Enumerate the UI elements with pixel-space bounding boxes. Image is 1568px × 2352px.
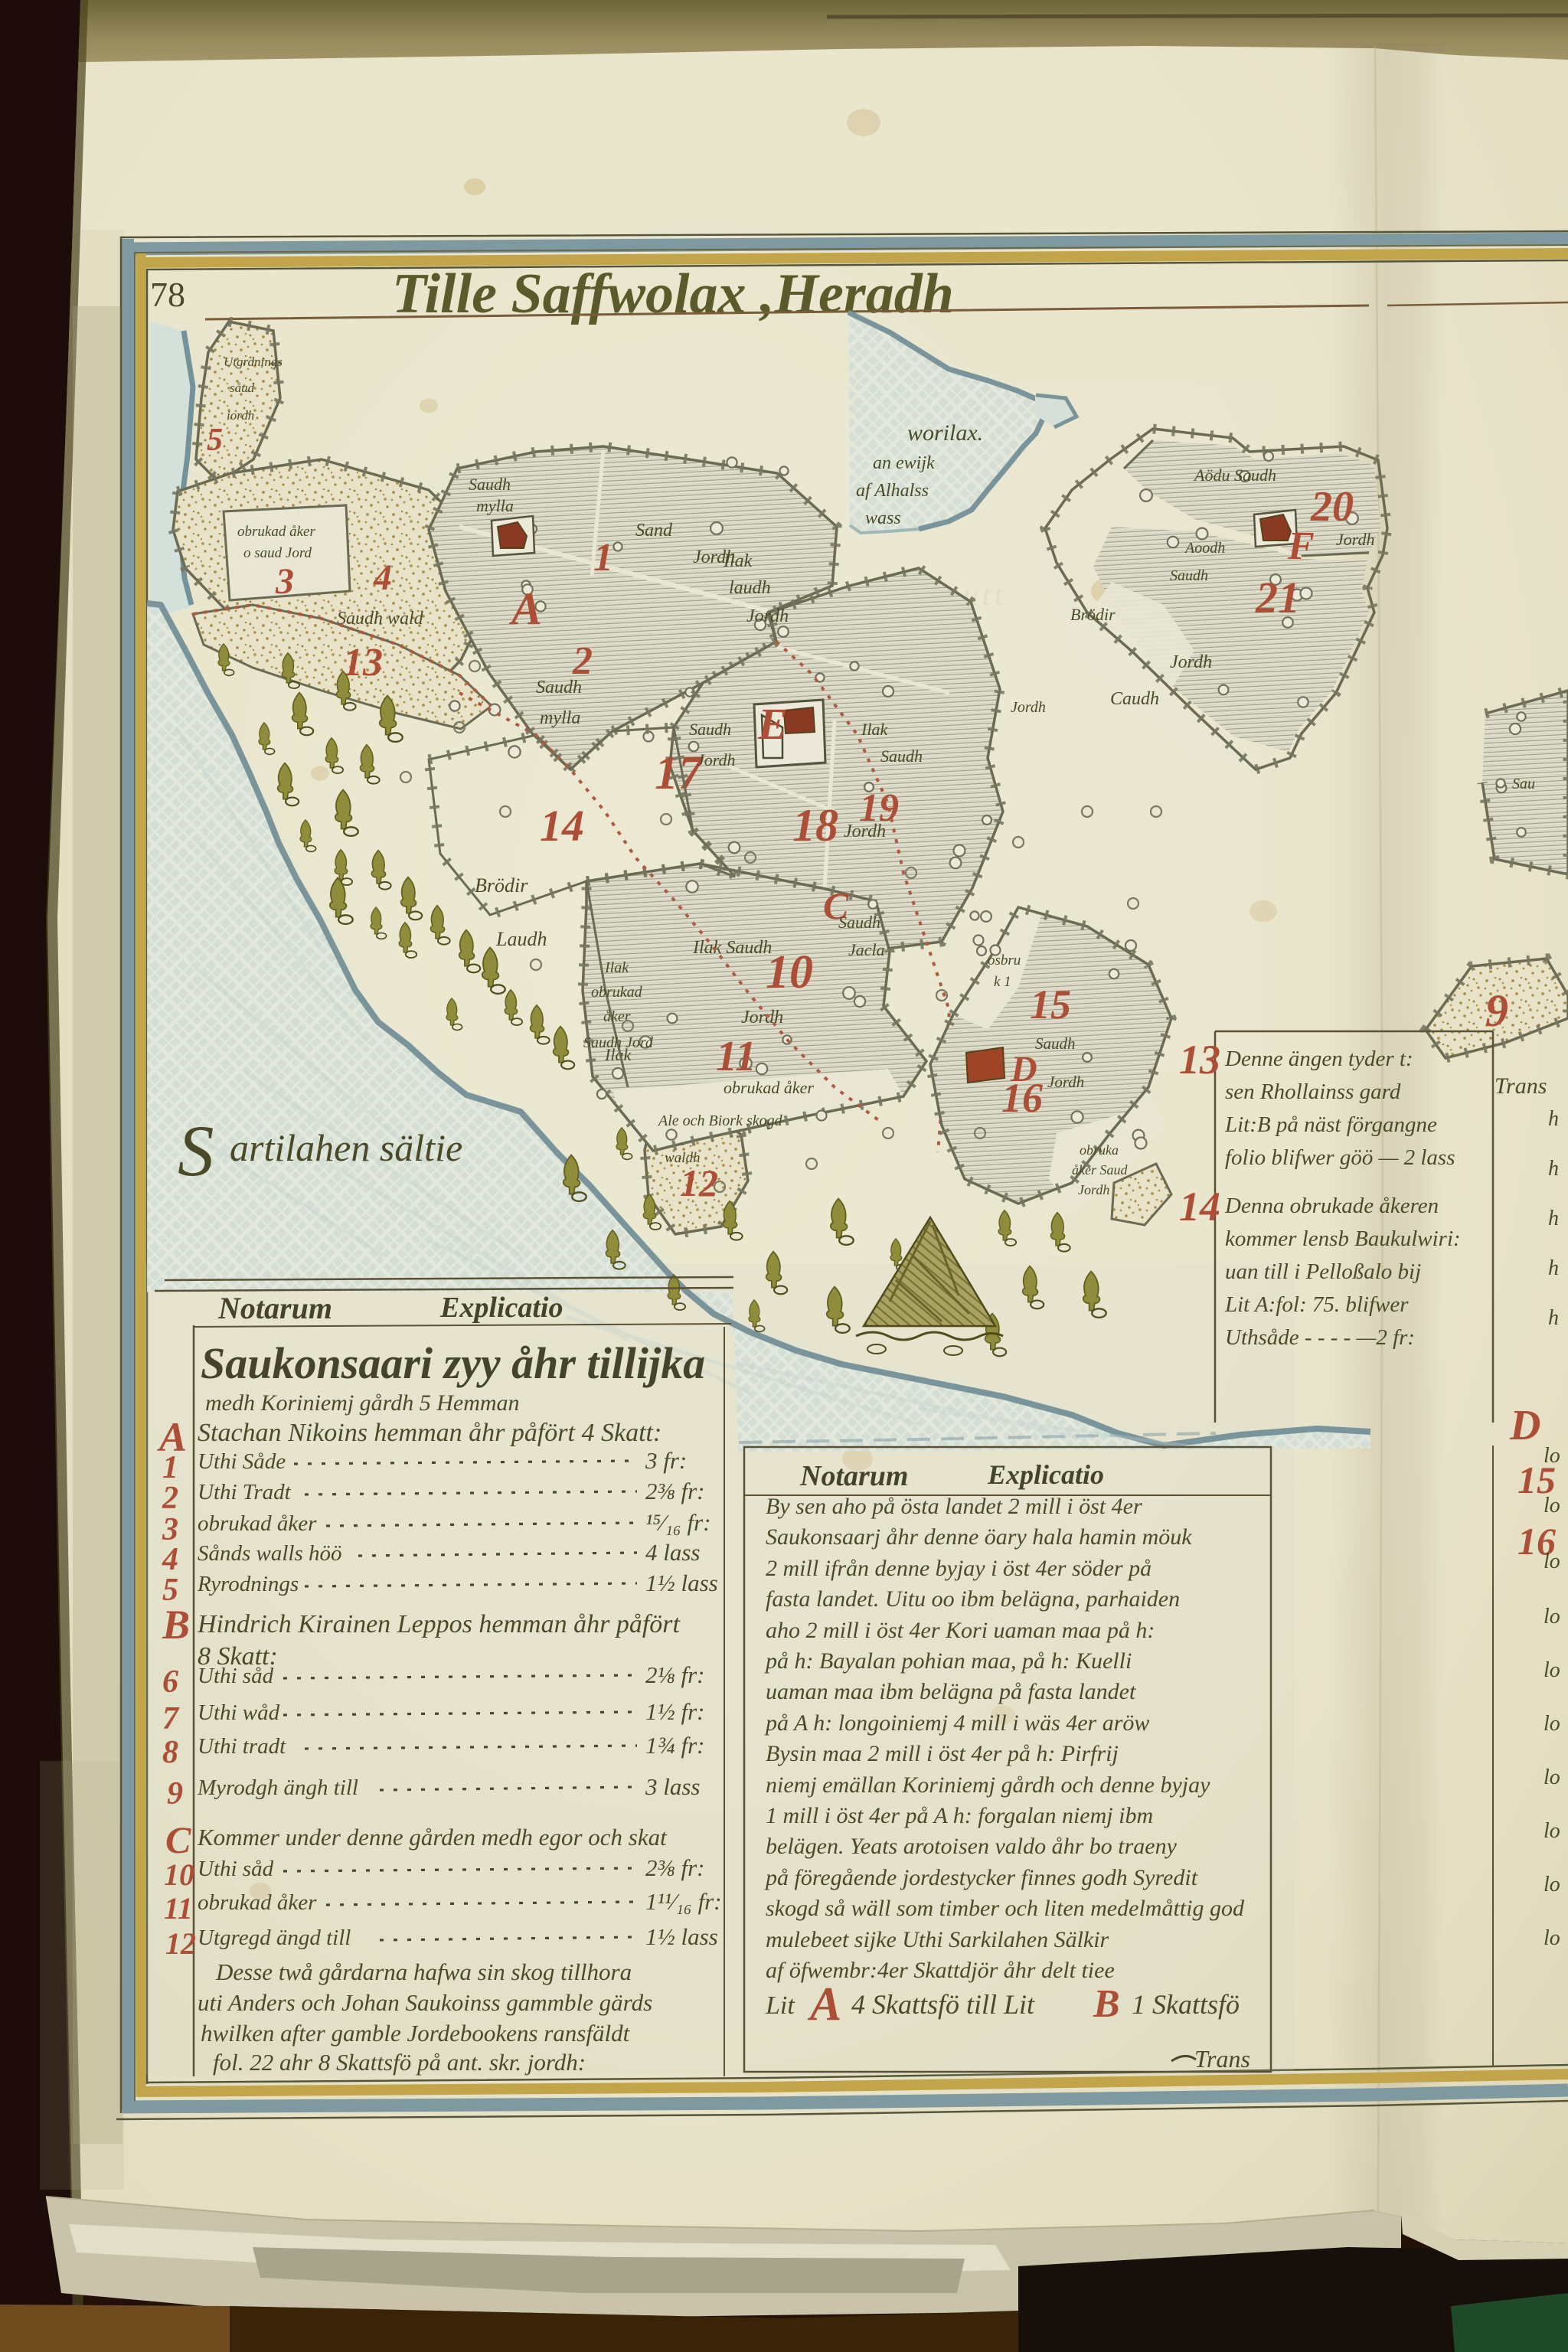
svg-text:4 Skattsfö till Lit: 4 Skattsfö till Lit	[851, 1989, 1035, 2020]
svg-text:laudh: laudh	[729, 578, 771, 598]
svg-text:Uthi såd: Uthi såd	[198, 1857, 274, 1881]
svg-text:Denna obrukade åkeren: Denna obrukade åkeren	[1224, 1194, 1439, 1218]
svg-text:21: 21	[1255, 573, 1300, 622]
svg-text:mylla: mylla	[540, 708, 580, 728]
svg-text:19: 19	[859, 786, 899, 830]
svg-text:4: 4	[373, 557, 392, 598]
svg-text:Bysin maa 2 mill i öst 4er på: Bysin maa 2 mill i öst 4er på h: Pirfrij	[766, 1741, 1119, 1766]
svg-text:Explicatio: Explicatio	[439, 1292, 563, 1324]
svg-text:lo: lo	[1543, 1494, 1560, 1517]
svg-text:Ilak: Ilak	[861, 720, 888, 739]
svg-text:Trans: Trans	[1494, 1073, 1547, 1099]
svg-text:lo: lo	[1543, 1550, 1560, 1573]
svg-text:C: C	[165, 1818, 191, 1861]
svg-text:obrukad åker: obrukad åker	[198, 1890, 317, 1915]
svg-text:Jordh: Jordh	[741, 1008, 783, 1027]
svg-text:Saudh: Saudh	[1170, 567, 1208, 584]
svg-text:By sen aho på östa landet 2 mi: By sen aho på östa landet 2 mill i öst 4…	[766, 1494, 1142, 1519]
svg-text:1: 1	[593, 536, 613, 580]
svg-text:Lit: Lit	[765, 1991, 795, 2020]
svg-text:Trans: Trans	[1194, 2045, 1250, 2073]
svg-text:13: 13	[343, 641, 383, 684]
svg-text:Aoodh: Aoodh	[1184, 540, 1225, 557]
svg-text:hwilken after gamble Jordebook: hwilken after gamble Jordebookens ransfä…	[201, 2020, 631, 2047]
svg-text:kommer lensb Baukulwiri:: kommer lensb Baukulwiri:	[1225, 1227, 1461, 1251]
svg-text:5: 5	[207, 423, 223, 458]
svg-text:Ryrodnings: Ryrodnings	[197, 1572, 299, 1596]
svg-text:uan till i Pelloßalo bij: uan till i Pelloßalo bij	[1225, 1259, 1421, 1284]
svg-text:78: 78	[150, 275, 185, 314]
svg-text:Notarum: Notarum	[799, 1460, 908, 1492]
svg-text:Lit:B på näst förgangne: Lit:B på näst förgangne	[1224, 1112, 1437, 1137]
svg-text:wass: wass	[865, 508, 901, 528]
svg-text:h: h	[1548, 1207, 1559, 1230]
svg-text:iordh: iordh	[227, 408, 254, 423]
svg-text:af Alhalss: af Alhalss	[856, 481, 929, 501]
svg-text:o saud Jord: o saud Jord	[243, 545, 312, 561]
svg-text:8: 8	[162, 1735, 178, 1770]
svg-text:Uthi Tradt: Uthi Tradt	[198, 1480, 292, 1504]
svg-text:lo: lo	[1543, 1444, 1560, 1468]
svg-text:artilahen sältie: artilahen sältie	[230, 1126, 462, 1169]
svg-text:h: h	[1548, 1157, 1559, 1181]
svg-text:Uthi tradt: Uthi tradt	[198, 1734, 286, 1759]
svg-text:Saudh: Saudh	[469, 475, 511, 494]
svg-text:10: 10	[766, 946, 813, 998]
svg-text:an ewijk: an ewijk	[873, 453, 935, 473]
svg-text:1 mill i öst 4er på A h: forg: 1 mill i öst 4er på A h: forgalan niemj …	[766, 1803, 1153, 1828]
svg-text:lo: lo	[1543, 1926, 1560, 1950]
svg-text:Denne ängen tyder t:: Denne ängen tyder t:	[1224, 1047, 1413, 1071]
svg-text:lo: lo	[1543, 1766, 1560, 1789]
svg-text:S: S	[178, 1110, 214, 1191]
svg-text:lo: lo	[1543, 1819, 1560, 1843]
svg-text:belägen. Yeats arotoisen vald: belägen. Yeats arotoisen valdo åhr bo tr…	[766, 1834, 1178, 1859]
svg-text:Uthsåde - - - - —2 fr:: Uthsåde - - - - —2 fr:	[1225, 1325, 1415, 1350]
svg-text:3 lass: 3 lass	[645, 1773, 701, 1800]
svg-text:obrukad: obrukad	[591, 984, 643, 1001]
svg-text:Uthi Såde: Uthi Såde	[198, 1449, 286, 1474]
svg-text:k 1: k 1	[994, 974, 1011, 990]
svg-text:6: 6	[162, 1664, 178, 1700]
svg-text:Saukonsaarj åhr denne öary hal: Saukonsaarj åhr denne öary hala hamin mö…	[766, 1524, 1192, 1550]
svg-text:20: 20	[1310, 483, 1354, 531]
svg-text:1½ lass: 1½ lass	[645, 1923, 718, 1950]
svg-text:Stachan Nikoins hemman åhr påf: Stachan Nikoins hemman åhr påfört 4 Skat…	[198, 1419, 661, 1447]
svg-text:folio blifwer göö — 2 lass: folio blifwer göö — 2 lass	[1225, 1145, 1455, 1170]
svg-text:7: 7	[162, 1701, 180, 1736]
svg-text:obrukad åker: obrukad åker	[724, 1078, 814, 1097]
svg-text:skogd så wäll som timber och l: skogd så wäll som timber och liten medel…	[766, 1896, 1245, 1921]
svg-text:såud: såud	[230, 381, 255, 395]
svg-text:Laudh: Laudh	[495, 928, 547, 950]
svg-text:11: 11	[716, 1033, 756, 1080]
svg-text:på föregående jordestycker fin: på föregående jordestycker finnes godh S…	[764, 1865, 1198, 1890]
svg-text:14: 14	[1179, 1184, 1220, 1230]
svg-text:Saukonsaari zyy åhr tillijka: Saukonsaari zyy åhr tillijka	[201, 1338, 705, 1388]
svg-text:A: A	[508, 583, 542, 634]
svg-text:¹⁵⁄₁₆ fr:: ¹⁵⁄₁₆ fr:	[645, 1509, 711, 1536]
svg-text:lo: lo	[1543, 1605, 1560, 1628]
svg-text:Sand: Sand	[635, 521, 673, 541]
svg-text:1½ fr:: 1½ fr:	[645, 1698, 705, 1725]
svg-text:lo: lo	[1543, 1712, 1560, 1736]
svg-text:Hindrich Kirainen Leppos hemma: Hindrich Kirainen Leppos hemman åhr påfö…	[197, 1610, 681, 1638]
svg-text:Jordh: Jordh	[1078, 1182, 1109, 1197]
svg-text:Jordh: Jordh	[697, 750, 736, 769]
svg-text:9: 9	[167, 1776, 183, 1811]
svg-text:Myrodgh ängh till: Myrodgh ängh till	[197, 1775, 358, 1800]
svg-text:2: 2	[162, 1481, 178, 1516]
svg-text:åker Saud: åker Saud	[1072, 1162, 1128, 1178]
svg-text:16: 16	[1001, 1075, 1043, 1121]
svg-text:18: 18	[792, 800, 838, 851]
svg-text:Brödir: Brödir	[475, 874, 528, 897]
svg-text:Lit A:fol: 75. blifwer: Lit A:fol: 75. blifwer	[1224, 1292, 1409, 1317]
svg-text:Utgregd ängd till: Utgregd ängd till	[198, 1926, 351, 1950]
svg-text:Ilak: Ilak	[604, 959, 629, 976]
svg-text:obrukad åker: obrukad åker	[198, 1511, 317, 1536]
svg-text:1¾ fr:: 1¾ fr:	[645, 1732, 705, 1759]
svg-text:uaman maa ibm belägna på fasta: uaman maa ibm belägna på fasta landet	[766, 1679, 1136, 1704]
svg-text:osbru: osbru	[988, 952, 1021, 969]
svg-text:Sånds walls höö: Sånds walls höö	[198, 1541, 342, 1566]
svg-text:medh Koriniemj gårdh 5 Hemman: medh Koriniemj gårdh 5 Hemman	[205, 1390, 520, 1416]
svg-text:1¹¹⁄₁₆ fr:: 1¹¹⁄₁₆ fr:	[645, 1888, 722, 1915]
svg-text:F: F	[1287, 524, 1315, 568]
svg-text:h: h	[1548, 1107, 1559, 1131]
svg-text:Notarum: Notarum	[217, 1291, 332, 1325]
svg-text:4 lass: 4 lass	[645, 1539, 701, 1566]
svg-text:12: 12	[165, 1926, 196, 1961]
svg-text:Saudh: Saudh	[838, 913, 880, 932]
svg-text:obrukad åker: obrukad åker	[237, 524, 315, 540]
svg-text:på h: Bayalan pohian maa, på: på h: Bayalan pohian maa, på h: Kuelli	[764, 1648, 1132, 1674]
svg-text:Explicatio: Explicatio	[987, 1459, 1104, 1490]
svg-text:mulebeet sijke Uthi Sarkilah: mulebeet sijke Uthi Sarkilahen Sälkir	[766, 1927, 1109, 1952]
svg-text:fasta landet. Uitu oo ibm bel: fasta landet. Uitu oo ibm belägna, parha…	[766, 1586, 1180, 1612]
svg-text:1 Skattsfö: 1 Skattsfö	[1132, 1989, 1240, 2020]
svg-text:mylla: mylla	[476, 496, 514, 515]
svg-text:fol. 22 ahr 8 Skattsfö på ant.: fol. 22 ahr 8 Skattsfö på ant. skr. jord…	[213, 2049, 586, 2076]
svg-text:13: 13	[1179, 1037, 1220, 1083]
svg-text:aho 2 mill i öst 4er Kori uam: aho 2 mill i öst 4er Kori uaman maa på h…	[766, 1618, 1155, 1643]
svg-text:E: E	[757, 699, 788, 749]
svg-text:Jordh: Jordh	[1047, 1073, 1084, 1091]
svg-text:niemj emällan Koriniemj gårdh: niemj emällan Koriniemj gårdh och denne …	[766, 1772, 1210, 1798]
svg-text:h: h	[1548, 1306, 1559, 1330]
svg-text:Uthi wåd: Uthi wåd	[198, 1700, 280, 1725]
svg-text:obruka: obruka	[1080, 1142, 1119, 1158]
svg-text:Saudh: Saudh	[880, 746, 923, 766]
svg-text:2 mill ifrån denne byjay i öst: 2 mill ifrån denne byjay i öst 4er söder…	[766, 1556, 1151, 1581]
svg-text:worilax.: worilax.	[907, 420, 983, 446]
svg-text:Brödir: Brödir	[1070, 605, 1116, 624]
svg-text:Saudh Jord: Saudh Jord	[583, 1034, 654, 1051]
svg-text:Saudh wald: Saudh wald	[337, 609, 424, 629]
svg-text:Desse twå gårdarna hafwa sin s: Desse twå gårdarna hafwa sin skog tillho…	[215, 1958, 632, 1985]
svg-text:sen Rhollainss gard: sen Rhollainss gard	[1225, 1080, 1401, 1104]
svg-text:12: 12	[680, 1161, 718, 1204]
svg-text:Jordh: Jordh	[1336, 530, 1375, 549]
svg-text:Caudh: Caudh	[1110, 689, 1159, 709]
svg-text:B: B	[162, 1602, 190, 1648]
svg-text:Utgrdnings: Utgrdnings	[224, 354, 283, 369]
svg-text:D: D	[1509, 1402, 1540, 1449]
svg-text:2⅛ fr:: 2⅛ fr:	[645, 1661, 705, 1688]
svg-text:uti Anders och Johan Saukoins: uti Anders och Johan Saukoinss gammble g…	[198, 1989, 652, 2016]
svg-text:9: 9	[1485, 985, 1508, 1036]
svg-text:11: 11	[164, 1891, 193, 1926]
svg-text:Aödu Saudh: Aödu Saudh	[1193, 465, 1276, 485]
svg-text:14: 14	[540, 801, 584, 851]
svg-text:Kommer under denne gården medh: Kommer under denne gården medh egor och …	[197, 1824, 668, 1851]
svg-text:Uthi såd: Uthi såd	[198, 1664, 274, 1688]
svg-text:A: A	[807, 1978, 841, 2030]
svg-text:2⅜ fr:: 2⅜ fr:	[645, 1478, 705, 1504]
svg-text:2⅜ fr:: 2⅜ fr:	[645, 1854, 705, 1881]
svg-text:15: 15	[1030, 982, 1071, 1027]
svg-text:Jacla: Jacla	[848, 940, 885, 959]
svg-text:2: 2	[572, 639, 593, 683]
svg-text:Saudh: Saudh	[1035, 1034, 1076, 1053]
svg-text:lo: lo	[1543, 1873, 1560, 1896]
svg-text:Saudh: Saudh	[689, 720, 731, 739]
svg-text:Ale och Biork skogd: Ale och Biork skogd	[657, 1112, 783, 1129]
svg-text:Sau: Sau	[1512, 776, 1535, 792]
svg-text:Jordh: Jordh	[1011, 699, 1046, 716]
svg-text:Jordh: Jordh	[746, 606, 789, 626]
svg-text:B: B	[1093, 1982, 1120, 2026]
svg-text:lo: lo	[1543, 1658, 1560, 1682]
svg-text:3 fr:: 3 fr:	[645, 1447, 687, 1474]
svg-text:på A h: longoiniemj 4 mill i w: på A h: longoiniemj 4 mill i wäs 4er arö…	[764, 1710, 1149, 1736]
svg-text:h: h	[1548, 1256, 1559, 1280]
svg-text:Ilak: Ilak	[723, 551, 753, 571]
svg-text:3: 3	[275, 561, 294, 602]
svg-text:åker: åker	[603, 1008, 631, 1025]
svg-text:Jordh: Jordh	[1170, 652, 1212, 672]
svg-text:1½ lass: 1½ lass	[645, 1570, 718, 1596]
svg-text:10: 10	[164, 1857, 194, 1892]
svg-text:Ilak Saudh: Ilak Saudh	[692, 938, 772, 958]
